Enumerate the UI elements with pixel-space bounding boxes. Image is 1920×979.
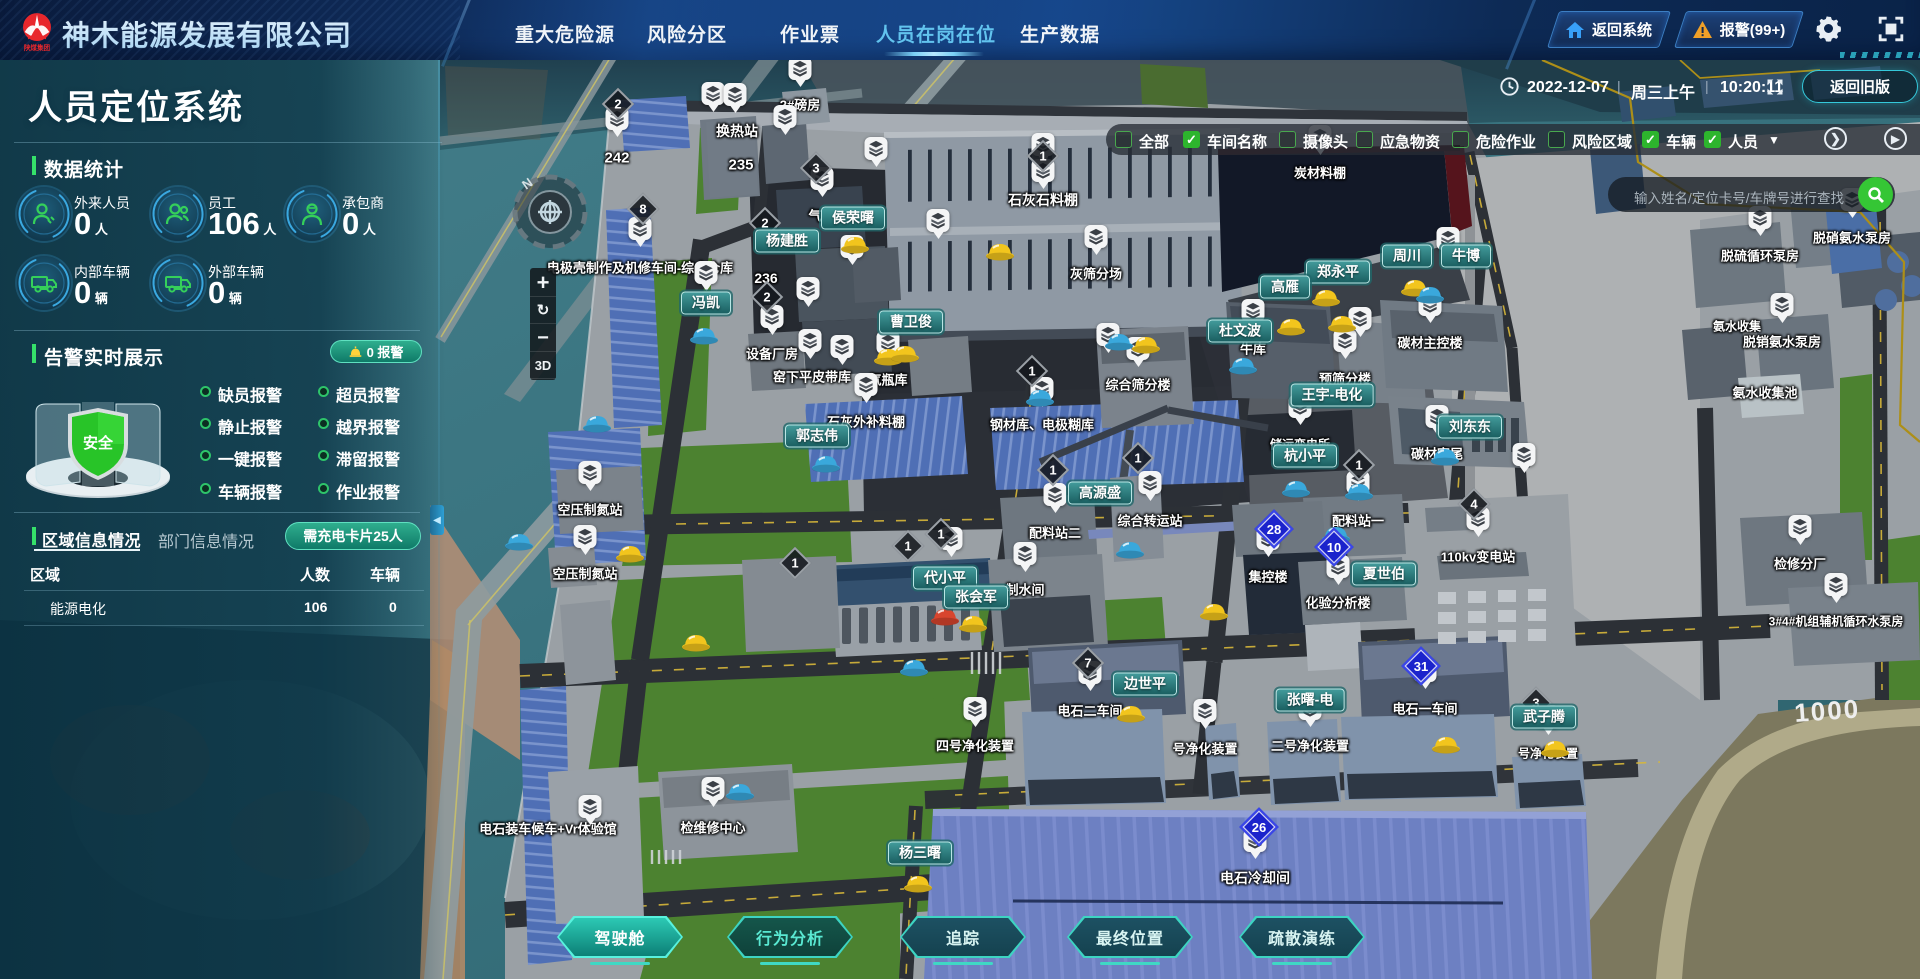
svg-text:1000: 1000 xyxy=(1793,693,1861,728)
svg-text:安全: 安全 xyxy=(83,434,114,452)
